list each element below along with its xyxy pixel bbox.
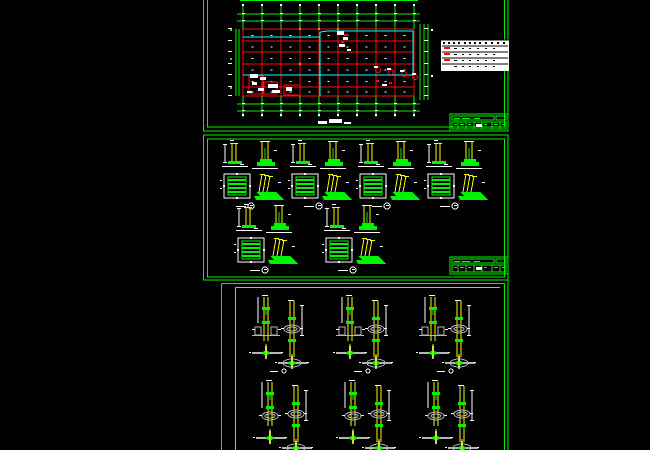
annotation-bubbles <box>374 66 418 86</box>
foundation-detail-group[interactable] <box>356 140 420 209</box>
foundation-detail-group[interactable] <box>288 140 352 209</box>
drawing-title-smudge <box>318 119 351 124</box>
column-detail-group[interactable] <box>333 295 393 373</box>
column-detail-group[interactable] <box>253 380 313 450</box>
dimension-lines <box>228 4 433 117</box>
sheet-foundation-plan[interactable] <box>204 0 510 131</box>
title-block <box>450 257 508 274</box>
column-detail-group[interactable] <box>419 380 479 450</box>
foundation-detail-group[interactable] <box>322 204 386 273</box>
foundation-detail-group[interactable] <box>234 204 298 273</box>
column-detail-group[interactable] <box>249 295 309 373</box>
column-detail-group[interactable] <box>336 380 396 450</box>
column-detail-group[interactable] <box>416 295 476 373</box>
footing-marks <box>252 28 406 93</box>
title-block <box>450 114 508 131</box>
foundation-plan[interactable] <box>228 1 433 118</box>
sheet-column-details[interactable] <box>222 280 509 450</box>
sheet-foundation-details[interactable] <box>204 135 509 280</box>
foundation-detail-group[interactable] <box>424 140 488 209</box>
cad-viewport <box>0 0 650 450</box>
drawing-surface[interactable] <box>0 0 650 450</box>
legend-table[interactable] <box>441 40 509 71</box>
foundation-detail-group[interactable] <box>220 140 284 209</box>
